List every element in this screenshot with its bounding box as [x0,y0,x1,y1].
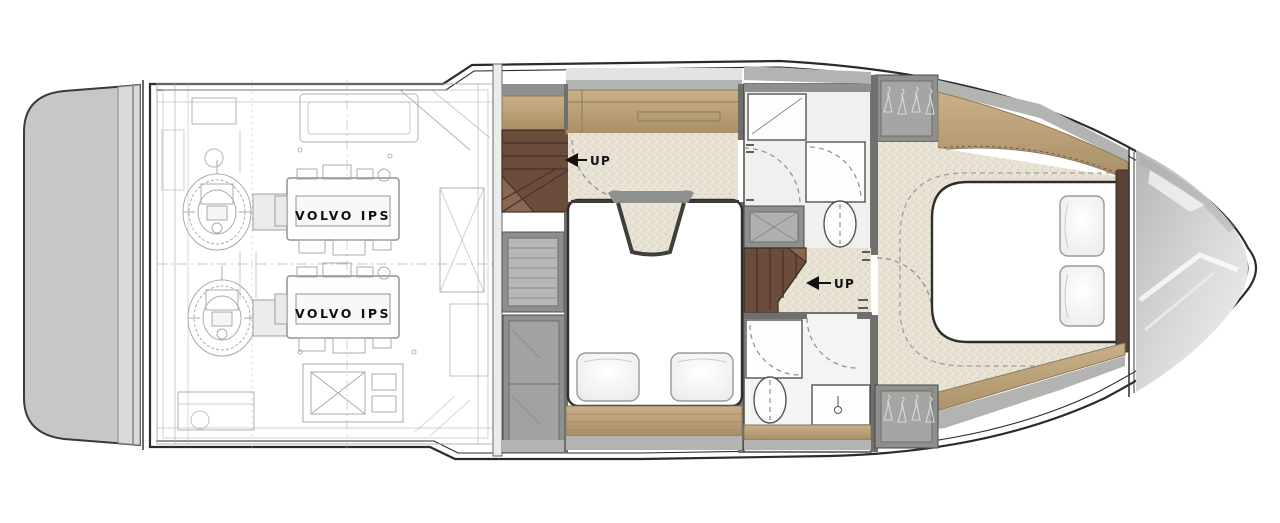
engine-label-starboard: VOLVO IPS [295,306,391,321]
bathroom-bottom-band [744,440,871,450]
bathroom-wood-floor [744,425,871,440]
cabin-right-wall-upper [738,84,744,140]
pillow [1060,196,1104,256]
bathroom-top-wall-left [744,313,807,319]
up-label-forward: UP [834,277,855,291]
bed-step-cap [608,190,694,203]
master-bed [932,182,1118,342]
bathroom-window [748,94,806,140]
master-wardrobe-top [875,75,938,142]
pillow [671,353,733,401]
engine-label-port: VOLVO IPS [295,208,391,223]
cabin-top-wall [566,80,742,90]
engine-block-port: VOLVO IPS [275,165,399,255]
pillow [577,353,639,401]
bathroom-aft-cabin [744,66,871,250]
side-deck-band [566,68,742,80]
mid-cabin-bed [568,190,742,406]
cabin-left-wall [564,84,568,130]
toilet [824,201,856,247]
shower [806,142,865,202]
bathroom-master [744,313,871,452]
mid-cabin [564,68,744,453]
shower [746,320,802,378]
bow-section [1129,148,1248,397]
swim-platform [24,85,140,445]
stair-landing [502,96,570,130]
shower-tray [744,206,804,248]
cabin-bottom-band [566,436,742,450]
cabin-desk [566,90,740,134]
headboard [1116,170,1129,352]
stairs-aft [502,130,570,212]
bed-base-cabinet [566,406,742,436]
ips-pod-port [183,160,251,250]
engine-room-bulkhead [493,64,502,456]
engine-room-linework [157,80,497,448]
bathroom-top-wall-right [857,313,871,319]
master-bulkhead-upper [871,75,878,255]
corridor-wardrobe [503,315,565,453]
master-wardrobe-bottom [875,385,938,448]
up-label-aft: UP [590,154,611,168]
yacht-floor-plan: VOLVO IPS VOLVO IPS [0,0,1280,523]
sink-vanity [812,385,870,425]
engine-room: VOLVO IPS VOLVO IPS [157,80,497,448]
engine-block-starboard: VOLVO IPS [275,263,399,353]
yacht-floor-plan-page: VOLVO IPS VOLVO IPS [0,0,1280,523]
bathroom-top-wall [744,84,871,92]
toilet [754,377,786,423]
corridor-cabinet-slats [508,238,558,306]
aft-companionway [502,84,570,453]
generator [303,364,403,422]
ips-pod-starboard [188,266,256,356]
pillow [1060,266,1104,326]
corridor-deck-band [502,440,565,452]
